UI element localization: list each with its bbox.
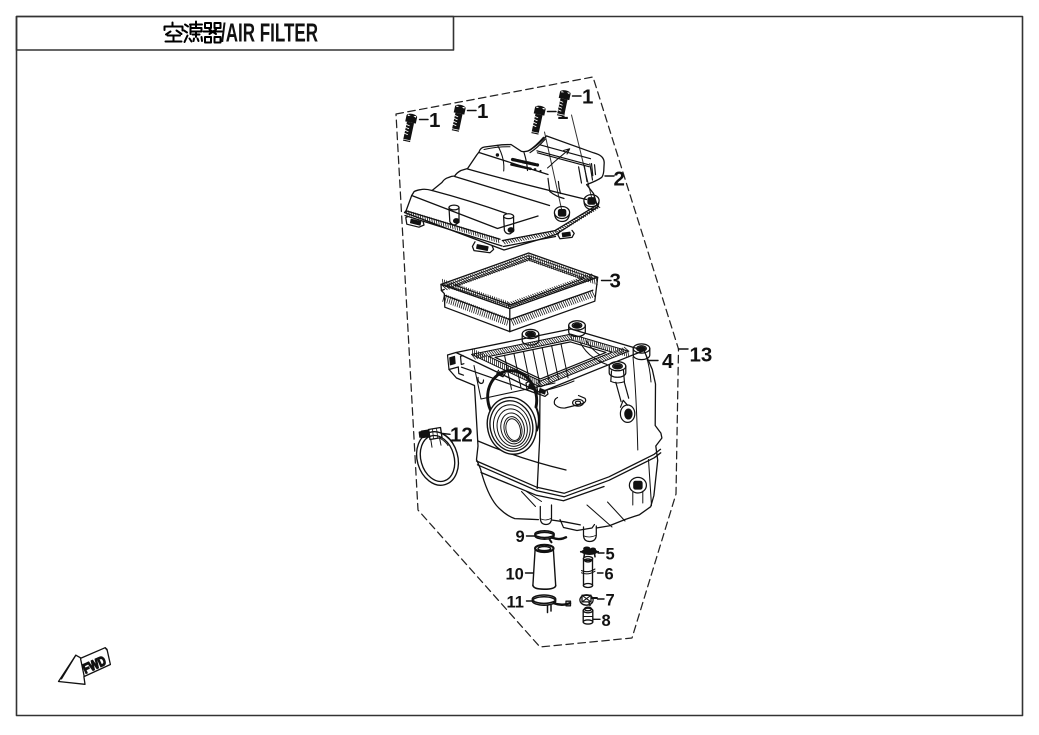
svg-text:2: 2 bbox=[614, 168, 625, 191]
svg-text:/AIR FILTER: /AIR FILTER bbox=[221, 20, 318, 48]
svg-text:1: 1 bbox=[582, 86, 593, 109]
svg-text:3: 3 bbox=[610, 270, 621, 293]
svg-text:4: 4 bbox=[662, 350, 674, 373]
svg-text:10: 10 bbox=[506, 566, 524, 584]
svg-text:5: 5 bbox=[606, 546, 615, 564]
svg-text:6: 6 bbox=[605, 566, 614, 584]
svg-text:1: 1 bbox=[477, 100, 488, 123]
svg-text:9: 9 bbox=[516, 528, 525, 546]
svg-text:11: 11 bbox=[507, 594, 524, 612]
svg-text:8: 8 bbox=[602, 612, 611, 630]
svg-text:12: 12 bbox=[450, 423, 473, 446]
svg-text:7: 7 bbox=[606, 592, 615, 610]
svg-text:13: 13 bbox=[690, 344, 713, 367]
svg-text:1: 1 bbox=[429, 109, 440, 132]
